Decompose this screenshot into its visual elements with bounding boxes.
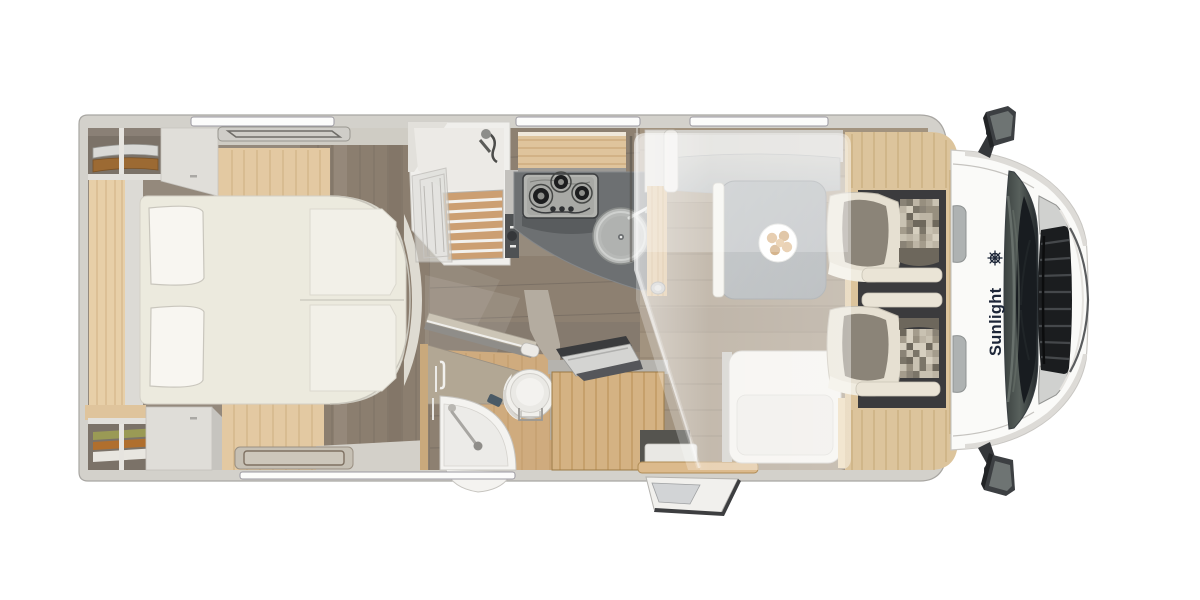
svg-text:Sunlight: Sunlight: [987, 287, 1005, 356]
